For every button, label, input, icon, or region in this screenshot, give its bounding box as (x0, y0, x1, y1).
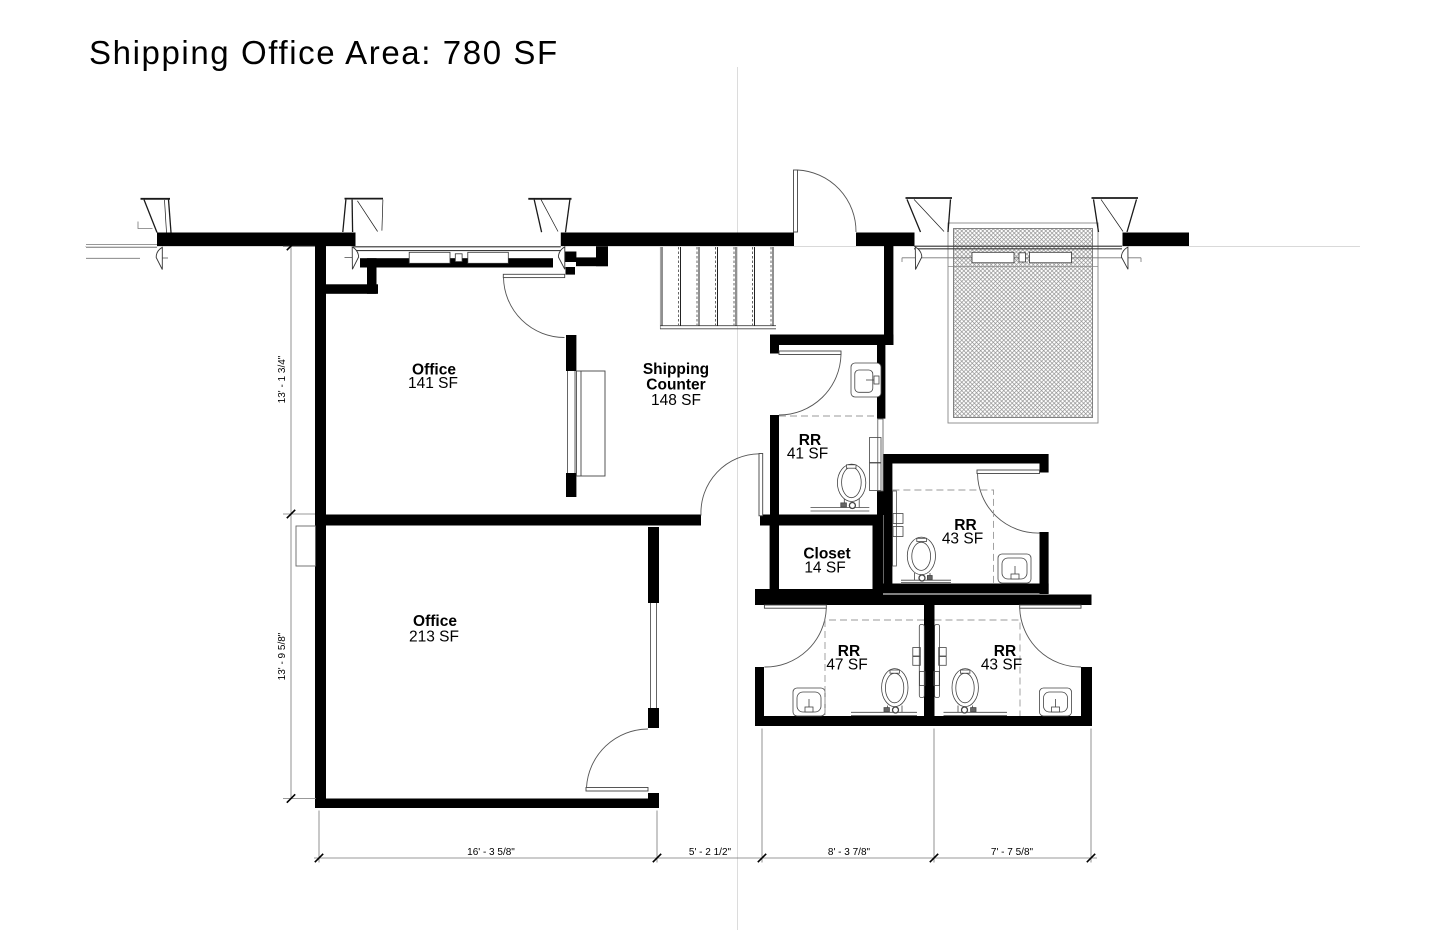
svg-text:148 SF: 148 SF (651, 392, 701, 409)
svg-text:8' - 3 7/8": 8' - 3 7/8" (828, 847, 871, 858)
svg-text:141 SF: 141 SF (408, 375, 458, 392)
svg-text:47 SF: 47 SF (826, 657, 867, 674)
svg-text:Shipping: Shipping (643, 361, 709, 378)
svg-text:5' - 2 1/2": 5' - 2 1/2" (689, 847, 732, 858)
svg-text:13' - 1 3/4": 13' - 1 3/4" (277, 355, 288, 403)
svg-text:43 SF: 43 SF (981, 657, 1022, 674)
svg-text:43 SF: 43 SF (942, 531, 983, 548)
svg-text:Shipping Office Area: 780 SF: Shipping Office Area: 780 SF (89, 34, 559, 71)
svg-text:213 SF: 213 SF (409, 629, 459, 646)
svg-text:41 SF: 41 SF (787, 446, 828, 463)
svg-text:7' - 7 5/8": 7' - 7 5/8" (991, 847, 1034, 858)
svg-text:13' - 9 5/8": 13' - 9 5/8" (277, 632, 288, 680)
svg-text:14 SF: 14 SF (804, 560, 845, 577)
svg-text:Office: Office (413, 613, 457, 630)
svg-text:16' - 3 5/8": 16' - 3 5/8" (467, 847, 515, 858)
svg-text:Counter: Counter (646, 377, 705, 394)
